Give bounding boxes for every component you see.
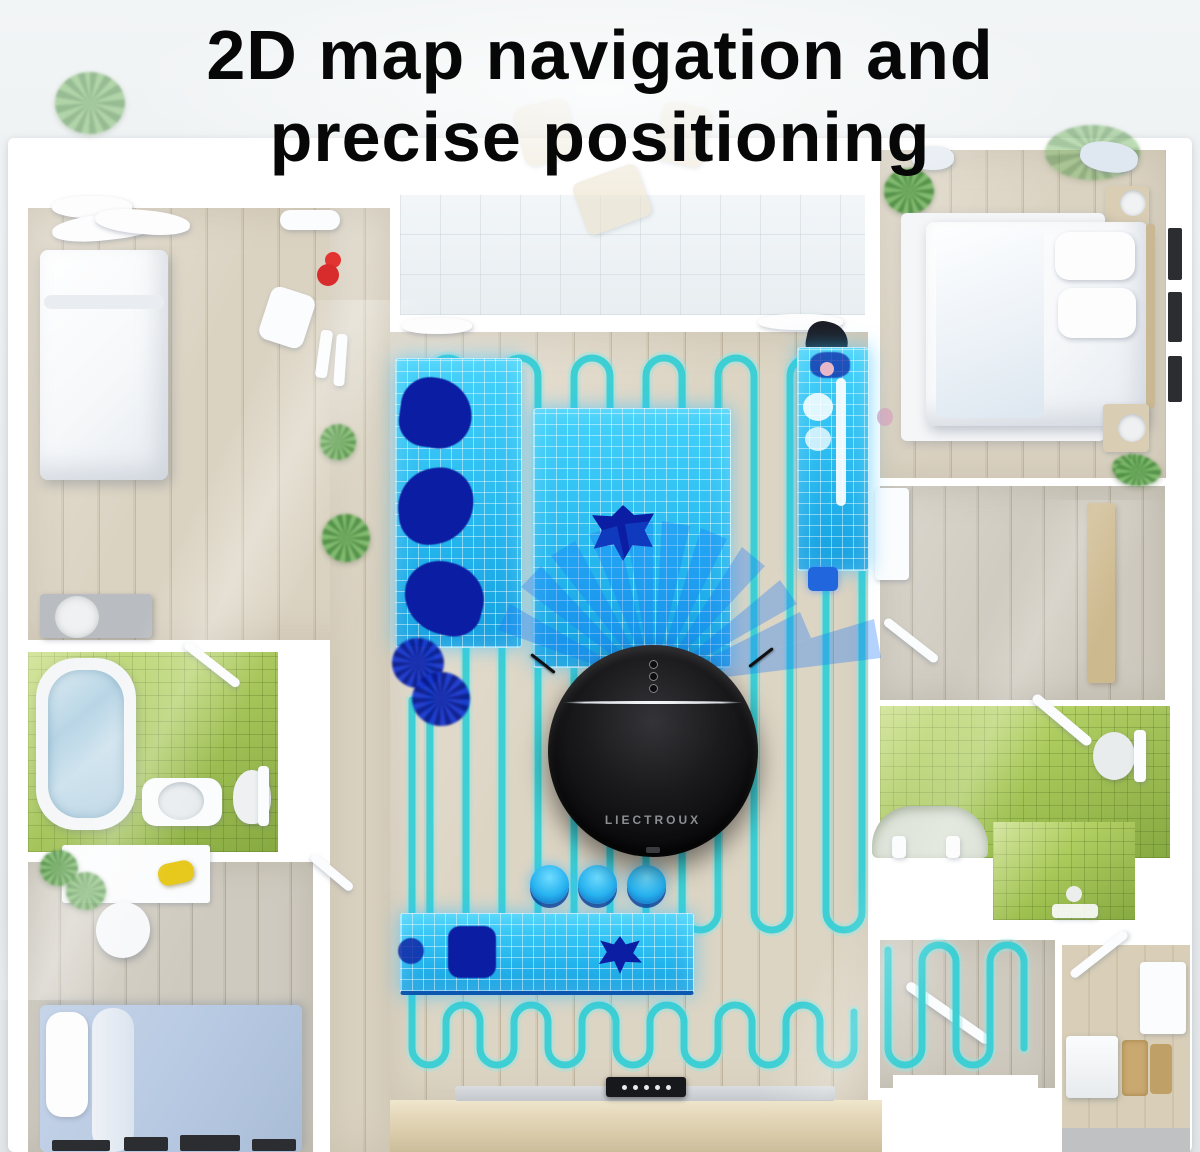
robot-lid-seam — [563, 701, 744, 704]
robot-vacuum: LIECTROUX — [548, 645, 758, 857]
dock-pin-3 — [644, 1085, 649, 1090]
robot-button-2 — [649, 672, 658, 681]
dock-pin-1 — [622, 1085, 627, 1090]
robot-button-1 — [649, 660, 658, 669]
headline-line-2: precise positioning — [0, 96, 1200, 178]
headline-line-1: 2D map navigation and — [0, 14, 1200, 96]
dock-pin-4 — [655, 1085, 660, 1090]
headline: 2D map navigation and precise positionin… — [0, 14, 1200, 178]
dock-pin-5 — [666, 1085, 671, 1090]
dock-pin-2 — [633, 1085, 638, 1090]
robot-buttons — [644, 657, 662, 696]
robot-brand-label: LIECTROUX — [548, 813, 758, 827]
robot-front-sensor — [646, 847, 660, 853]
robot-button-3 — [649, 684, 658, 693]
charging-dock — [606, 1077, 686, 1097]
product-marketing-render: LIECTROUX — [0, 0, 1200, 1152]
